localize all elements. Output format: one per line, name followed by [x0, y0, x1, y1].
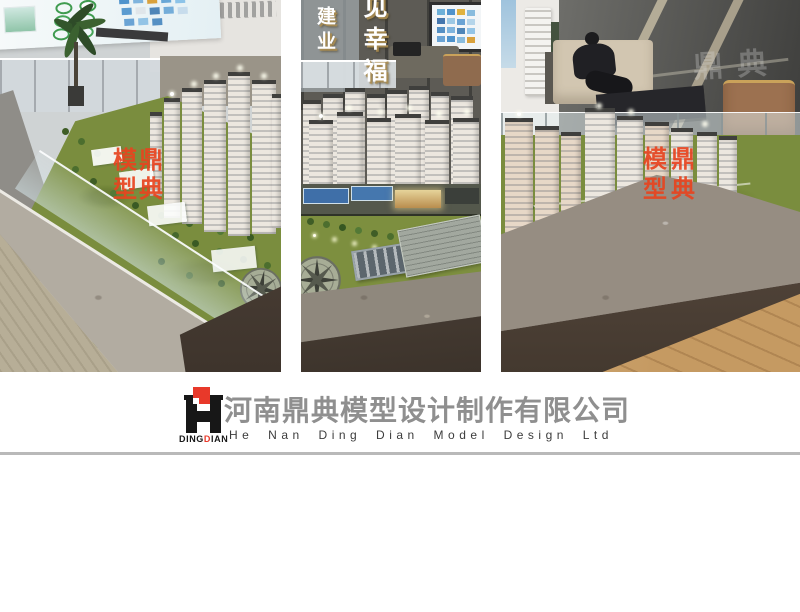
model-lit-building: [395, 190, 441, 208]
seal-char: 鼎: [669, 145, 697, 175]
dingdian-wordmark: DINGDIAN: [179, 434, 228, 444]
logo-cube-notch: [193, 398, 199, 404]
model-tower: [272, 94, 281, 228]
3d-sign-right: 见幸福: [355, 0, 390, 90]
seal-char: 鼎: [138, 146, 164, 175]
red-seal-watermark: 模 鼎 型 典: [641, 145, 697, 205]
model-sports-court: [351, 186, 393, 201]
photo-showroom-center-angle: 建业 见幸福: [301, 0, 481, 372]
red-seal-watermark: 模 鼎 型 典: [112, 146, 164, 204]
dingdian-logo-mark: [184, 387, 224, 433]
screen-rendering-thumbnail: [3, 6, 36, 34]
palm-plant: [46, 2, 110, 106]
model-tower: [535, 126, 559, 228]
company-name-chinese: 河南鼎典模型设计制作有限公司: [224, 389, 784, 429]
window-watermark: 鼎典: [692, 38, 782, 87]
wall-screen: [429, 2, 481, 52]
rooftop-lights: [319, 114, 323, 118]
seal-char: 典: [669, 175, 697, 205]
lounge-chair: [443, 54, 481, 86]
seal-char: 模: [112, 146, 138, 175]
corner-screen: [501, 0, 516, 68]
wordmark-part: DING: [179, 434, 204, 444]
plant-pot: [68, 86, 84, 106]
rooftop-lights: [170, 92, 174, 96]
model-tower: [164, 98, 180, 218]
tree-cluster: [62, 128, 69, 135]
seal-char: 型: [112, 175, 138, 204]
seal-char: 典: [138, 175, 164, 204]
model-tower: [228, 72, 250, 236]
logo-crossbar: [194, 411, 214, 422]
plant-stem: [74, 42, 78, 88]
photo-showroom-left-angle: 模 鼎 型 典: [0, 0, 281, 372]
path-lights: [313, 234, 316, 237]
company-name-english: He Nan Ding Dian Model Design Ltd: [229, 428, 613, 442]
model-building-block: [445, 188, 479, 204]
page: 模 鼎 型 典 建业 见幸福: [0, 0, 800, 612]
wordmark-part-red: D: [204, 434, 211, 444]
model-tower: [204, 80, 226, 232]
photo-showroom-right-angle: 鼎典 模 鼎 型 典: [501, 0, 800, 372]
sofa-cushion: [393, 42, 421, 56]
screen-photo-thumbnails: [437, 9, 445, 15]
tree-row: [307, 218, 314, 225]
model-sports-court: [303, 188, 349, 204]
seal-char: 型: [641, 175, 669, 205]
wordmark-part: IAN: [211, 434, 228, 444]
3d-sign-left: 建业: [311, 6, 338, 56]
screen-photo-thumbnails: [119, 0, 129, 4]
seal-char: 模: [641, 145, 669, 175]
model-tower: [182, 88, 202, 224]
model-commercial-strip: [301, 184, 481, 216]
rooftop-lights: [517, 112, 521, 116]
footer-divider-line: [0, 452, 800, 455]
model-tower: [505, 118, 533, 234]
